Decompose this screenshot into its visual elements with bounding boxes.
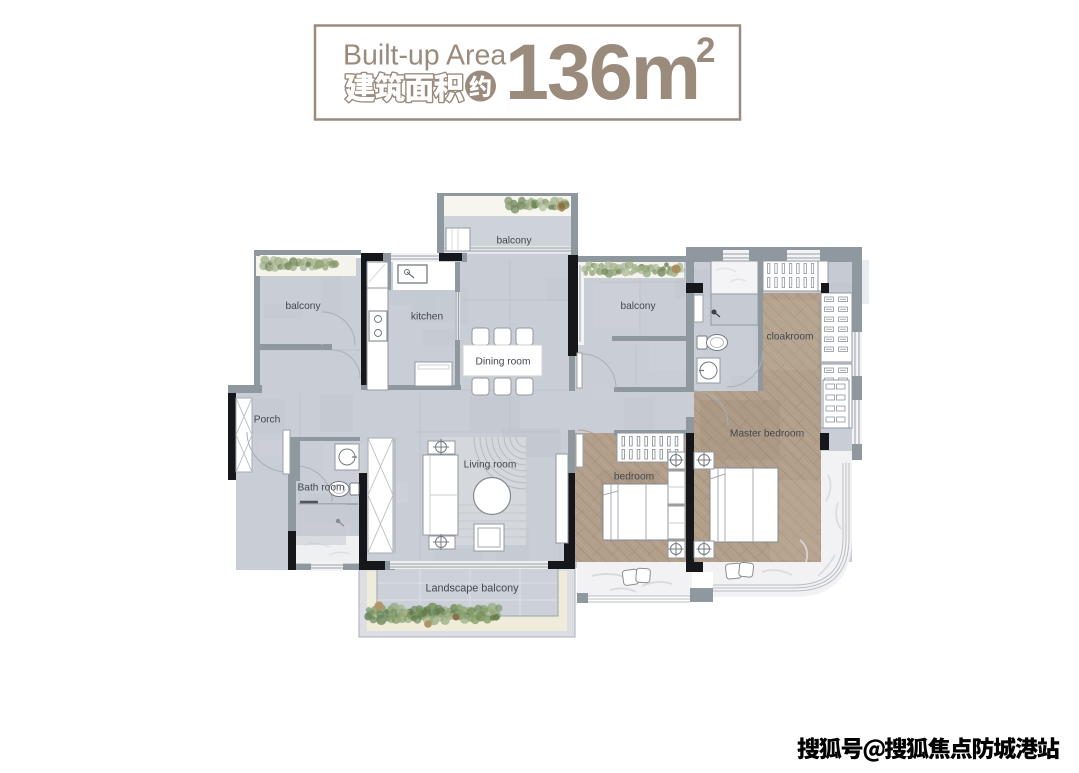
svg-text:Living room: Living room xyxy=(464,460,517,471)
svg-text:Master bedroom: Master bedroom xyxy=(730,429,804,440)
svg-text:balcony: balcony xyxy=(620,301,656,312)
svg-text:Built-up Area: Built-up Area xyxy=(343,40,506,72)
svg-text:Bath room: Bath room xyxy=(298,483,345,494)
svg-text:Landscape balcony: Landscape balcony xyxy=(425,583,519,595)
svg-text:2: 2 xyxy=(696,31,715,70)
svg-text:balcony: balcony xyxy=(285,301,321,312)
svg-text:balcony: balcony xyxy=(496,236,532,247)
svg-text:bedroom: bedroom xyxy=(614,472,654,483)
svg-text:kitchen: kitchen xyxy=(411,312,443,323)
svg-text:Porch: Porch xyxy=(254,415,281,426)
svg-text:cloakroom: cloakroom xyxy=(767,332,814,343)
svg-text:136m: 136m xyxy=(505,27,699,116)
svg-text:Dining room: Dining room xyxy=(476,357,531,368)
